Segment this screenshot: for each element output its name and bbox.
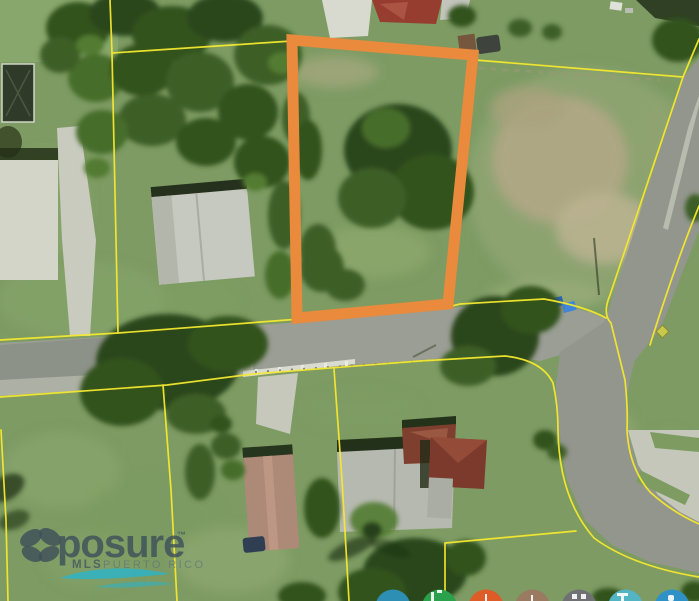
aerial-photo: posure ™ MLS PUERTO RICO	[0, 0, 699, 601]
trademark-symbol: ™	[177, 530, 186, 540]
parked-vehicle	[476, 34, 501, 54]
house-bottom-left	[242, 444, 299, 551]
concrete-slab	[0, 160, 58, 280]
house-left	[151, 179, 255, 285]
listing-map-view: posure ™ MLS PUERTO RICO	[0, 0, 699, 601]
subtitle-mls: MLS	[72, 559, 103, 571]
